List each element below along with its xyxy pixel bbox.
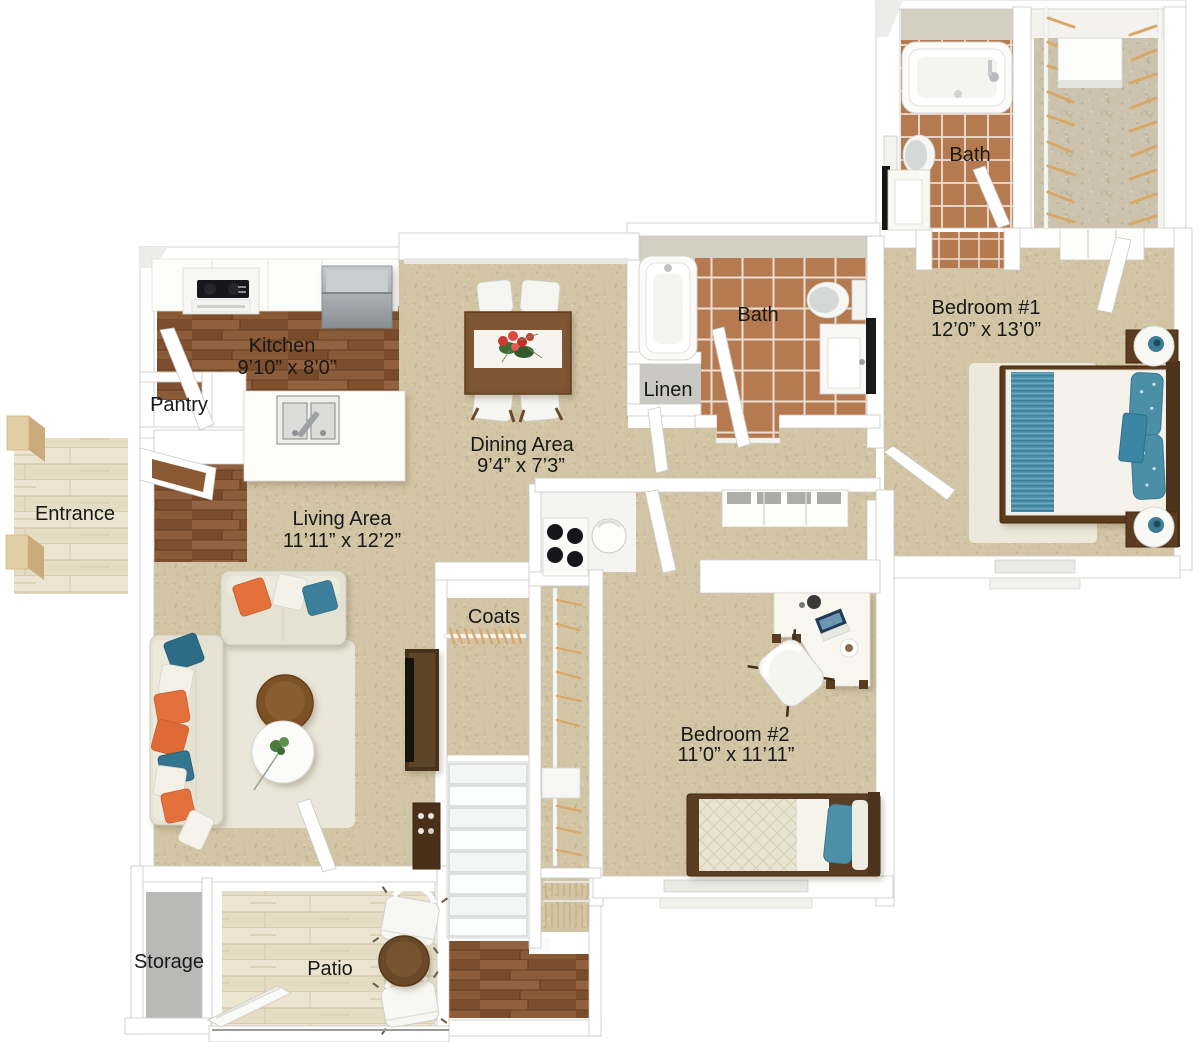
svg-text:Coats: Coats (468, 606, 520, 628)
svg-text:Entrance: Entrance (35, 503, 115, 525)
svg-text:Bedroom #2: Bedroom #2 (681, 724, 790, 746)
svg-text:Kitchen: Kitchen (249, 335, 316, 357)
svg-text:11’11” x 12’2”: 11’11” x 12’2” (283, 530, 401, 552)
svg-text:Bedroom #1: Bedroom #1 (932, 297, 1041, 319)
svg-text:Pantry: Pantry (150, 394, 208, 416)
svg-text:11’0” x 11’11”: 11’0” x 11’11” (678, 744, 795, 766)
svg-text:Bath: Bath (949, 144, 990, 166)
svg-text:Linen: Linen (644, 379, 693, 401)
svg-text:9’4” x 7’3”: 9’4” x 7’3” (477, 455, 565, 477)
svg-text:Storage: Storage (134, 951, 204, 973)
svg-text:Dining Area: Dining Area (470, 434, 574, 456)
svg-text:Patio: Patio (307, 958, 353, 980)
svg-text:Living Area: Living Area (293, 508, 393, 530)
svg-text:Bath: Bath (737, 304, 778, 326)
svg-text:12’0” x 13’0”: 12’0” x 13’0” (931, 319, 1041, 341)
svg-text:9’10” x 8’0”: 9’10” x 8’0” (238, 357, 337, 379)
